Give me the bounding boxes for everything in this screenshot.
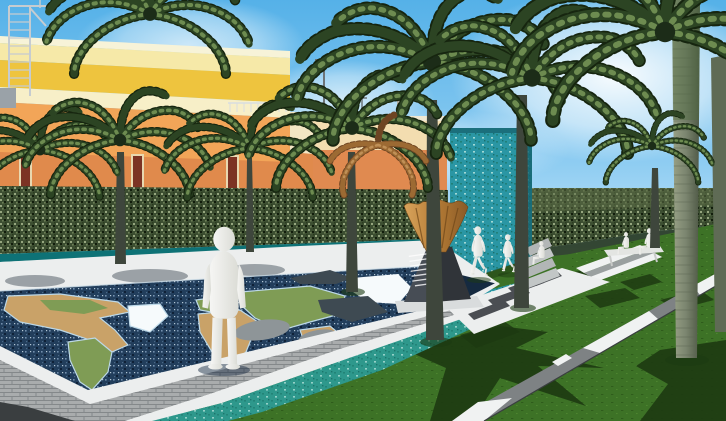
roof-equipment-box <box>0 88 16 108</box>
door <box>133 156 142 190</box>
rendering-canvas <box>0 0 726 421</box>
standing-figure-shadow <box>198 364 250 376</box>
figure-shadow <box>467 277 491 283</box>
door <box>228 157 237 191</box>
